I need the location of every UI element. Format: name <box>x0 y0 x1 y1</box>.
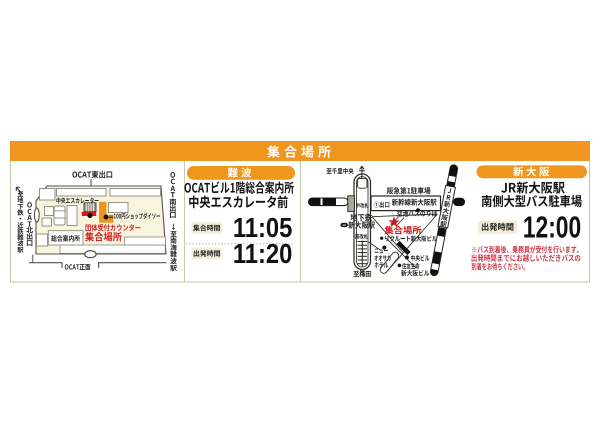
svg-text:集合場所: 集合場所 <box>267 142 335 161</box>
svg-text:集合時間: 集合時間 <box>193 223 221 233</box>
svg-text:①出口: ①出口 <box>374 199 390 209</box>
svg-text:新大阪駅: 新大阪駅 <box>348 220 375 231</box>
svg-text:中改札: 中改札 <box>356 202 369 210</box>
svg-text:100円ショップダイソー: 100円ショップダイソー <box>114 211 161 221</box>
svg-text:新幹線新大阪駅: 新幹線新大阪駅 <box>392 197 437 208</box>
svg-text:11:20: 11:20 <box>233 238 293 269</box>
svg-text:集合場所: 集合場所 <box>85 229 122 244</box>
svg-text:12:00: 12:00 <box>523 209 581 244</box>
svg-text:到着をお待ちください。: 到着をお待ちください。 <box>471 262 528 273</box>
svg-text:中央エスカレータ前: 中央エスカレータ前 <box>188 191 288 211</box>
svg-text:出発時間: 出発時間 <box>193 249 221 259</box>
svg-text:新大阪ビル: 新大阪ビル <box>401 267 430 277</box>
svg-text:リクルート新大阪ビル: リクルート新大阪ビル <box>384 233 437 243</box>
svg-text:至地下鉄・近鉄難波駅: 至地下鉄・近鉄難波駅 <box>17 190 24 254</box>
svg-text:OCAT正面: OCAT正面 <box>65 262 91 272</box>
svg-text:南改札: 南改札 <box>355 233 369 241</box>
svg-text:総合案内所: 総合案内所 <box>51 234 80 244</box>
svg-text:至梅田: 至梅田 <box>353 269 371 279</box>
svg-text:南側大型バス駐車場: 南側大型バス駐車場 <box>481 191 582 210</box>
svg-text:ホテル: ホテル <box>374 260 388 270</box>
svg-text:空港バスのりば: 空港バスのりば <box>397 209 438 219</box>
svg-text:至千里中央: 至千里中央 <box>326 165 354 175</box>
svg-text:OCAT東出口: OCAT東出口 <box>72 170 113 181</box>
svg-text:出発時間: 出発時間 <box>481 221 514 233</box>
svg-text:↓至南海難波駅: ↓至南海難波駅 <box>170 222 177 273</box>
svg-text:阪急第1駐車場: 阪急第1駐車場 <box>387 185 431 196</box>
